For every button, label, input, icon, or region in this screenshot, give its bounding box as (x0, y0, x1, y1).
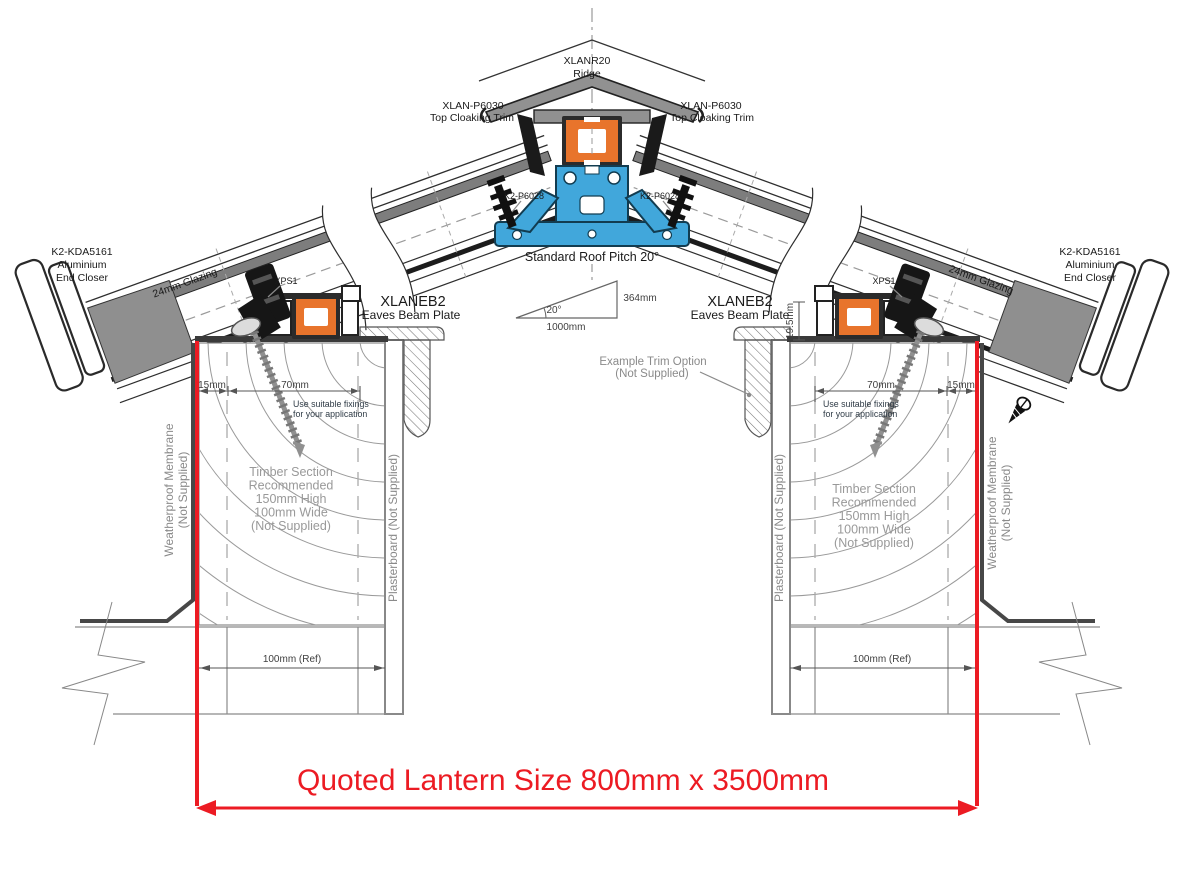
dim-70mm-left: 70mm (281, 380, 309, 391)
xps-right-label: XPS1 (872, 276, 895, 286)
timber-left-note: Timber Section Recommended 150mm High 10… (249, 465, 334, 533)
pitch-rise: 364mm (623, 293, 656, 304)
cloaking-left-code: XLAN-P6030 (442, 100, 503, 112)
beam-base-bar (195, 336, 388, 342)
trim-option-l2: (Not Supplied) (615, 368, 689, 380)
svg-text:Recommended: Recommended (832, 496, 917, 510)
end-closer-left-l3: End Closer (56, 272, 108, 284)
end-closer-left-code: K2-KDA5161 (51, 246, 112, 258)
cloaking-left-name: Top Cloaking Trim (430, 112, 514, 124)
fixings-note-left-l1: Use suitable fixings (293, 399, 369, 409)
fixings-note-right-l2: for your application (823, 409, 897, 419)
break-symbol-right (1039, 602, 1122, 745)
plasterboard-right-label: Plasterboard (Not Supplied) (772, 454, 786, 602)
glazing-bar-right-label: K2-P6028 (640, 191, 680, 201)
end-closer-right-code: K2-KDA5161 (1059, 246, 1120, 258)
drawing-canvas: Quoted Lantern Size 800mm x 3500mm 15mm … (0, 0, 1184, 872)
dim-15mm-right: 15mm (947, 380, 975, 391)
pitch-title: Standard Roof Pitch 20° (525, 250, 659, 264)
svg-text:100mm Wide: 100mm Wide (837, 523, 911, 537)
glazing-bar-left-label: K2-P6028 (504, 191, 544, 201)
dim-100mm-ref-left: 100mm (Ref) (263, 654, 321, 665)
end-closer-left-l2: Aluminium (57, 259, 106, 271)
svg-text:Timber Section: Timber Section (249, 465, 333, 479)
membrane-left-l2: (Not Supplied) (176, 452, 190, 529)
svg-text:150mm High: 150mm High (839, 509, 910, 523)
svg-text:Recommended: Recommended (249, 479, 334, 493)
membrane-right-l1: Weatherproof Membrane (985, 436, 999, 570)
cloaking-right-code: XLAN-P6030 (680, 100, 741, 112)
dim-15mm-left: 15mm (198, 380, 226, 391)
svg-text:100mm Wide: 100mm Wide (254, 506, 328, 520)
trim-option-l1: Example Trim Option (599, 356, 706, 368)
svg-text:(Not Supplied): (Not Supplied) (251, 519, 331, 533)
fixings-note-right-l1: Use suitable fixings (823, 399, 899, 409)
end-closer-right-l3: End Closer (1064, 272, 1116, 284)
xps-left-label: XPS1 (274, 276, 297, 286)
cloaking-right-name: Top Cloaking Trim (670, 112, 754, 124)
ridge-code-label: XLANR20 (564, 55, 611, 67)
ridge-name-label: Ridge (573, 68, 601, 80)
pitch-run: 1000mm (547, 322, 586, 333)
eaves-left-name: Eaves Beam Plate (362, 308, 461, 322)
timber-right-note: Timber Section Recommended 150mm High 10… (832, 482, 917, 550)
svg-text:150mm High: 150mm High (256, 492, 327, 506)
dim-70mm-right: 70mm (867, 380, 895, 391)
svg-text:Timber Section: Timber Section (832, 482, 916, 496)
membrane-right-l2: (Not Supplied) (999, 465, 1013, 542)
end-closer-right-l2: Aluminium (1065, 259, 1114, 271)
pitch-triangle: 20° 1000mm 364mm (516, 281, 657, 333)
fixings-note-left-l2: for your application (293, 409, 367, 419)
eaves-right-name: Eaves Beam Plate (691, 308, 790, 322)
roof-deck-lines (75, 627, 1100, 714)
screw-icon (1003, 395, 1033, 428)
quote-text: Quoted Lantern Size 800mm x 3500mm (297, 764, 829, 797)
membrane-left-l1: Weatherproof Membrane (162, 423, 176, 557)
leader-dot (747, 393, 751, 397)
break-symbol-left (62, 602, 145, 745)
pitch-angle: 20° (546, 305, 561, 316)
svg-text:(Not Supplied): (Not Supplied) (834, 536, 914, 550)
roof-lantern-section-drawing: Quoted Lantern Size 800mm x 3500mm 15mm … (0, 0, 1184, 872)
dim-100mm-ref-right: 100mm (Ref) (853, 654, 911, 665)
plasterboard-left-label: Plasterboard (Not Supplied) (386, 454, 400, 602)
